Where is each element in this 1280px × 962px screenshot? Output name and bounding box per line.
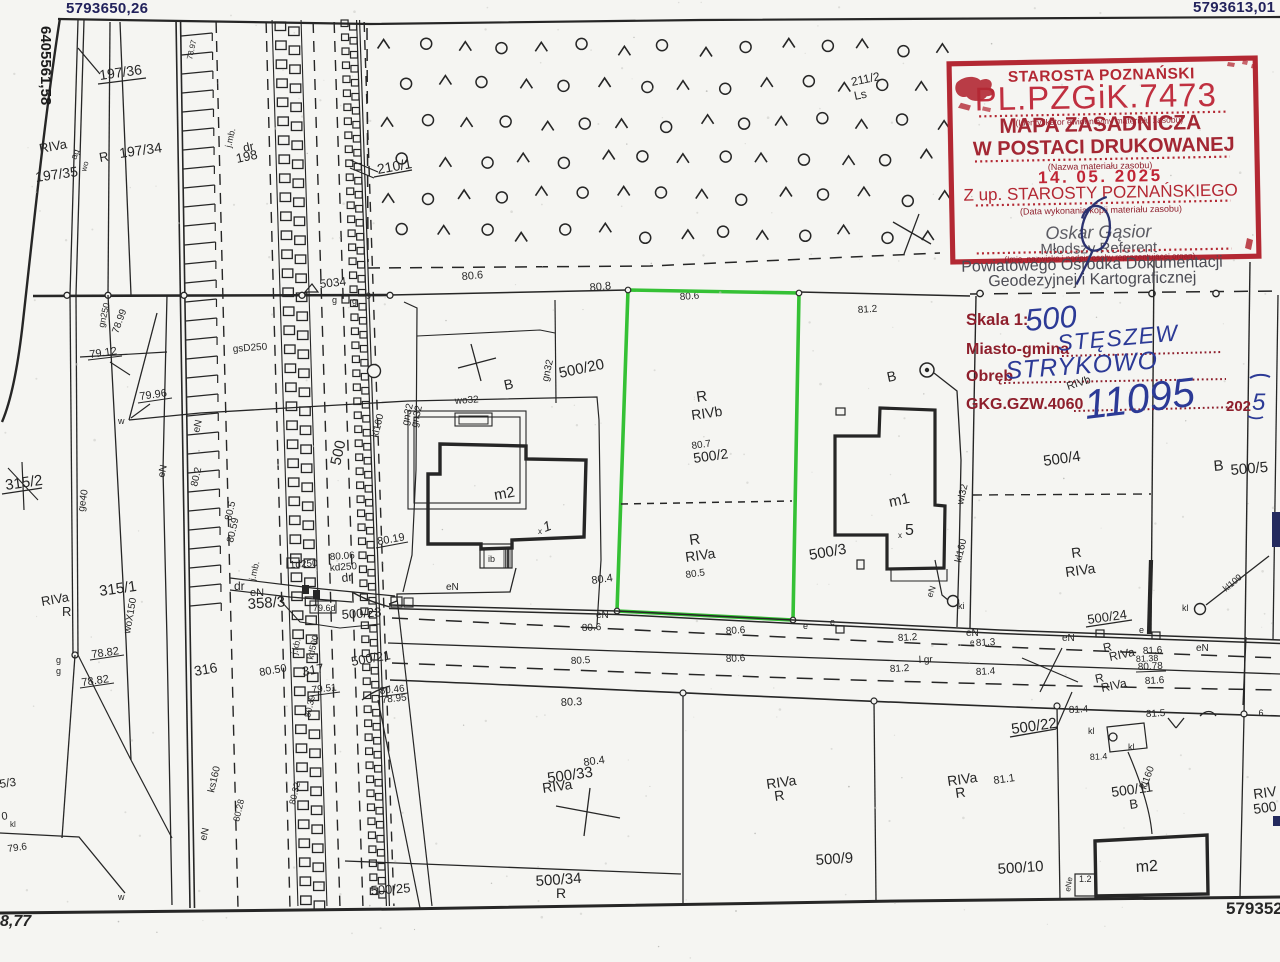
svg-text:.6: .6 bbox=[1256, 708, 1264, 718]
svg-text:81.5: 81.5 bbox=[1146, 708, 1166, 720]
svg-text:5: 5 bbox=[905, 522, 914, 539]
svg-text:eN: eN bbox=[1196, 643, 1209, 654]
svg-text:R: R bbox=[556, 885, 566, 901]
svg-text:5034: 5034 bbox=[319, 274, 347, 291]
svg-text:R: R bbox=[62, 604, 71, 619]
svg-text:80.5: 80.5 bbox=[571, 655, 591, 667]
svg-text:80.6: 80.6 bbox=[726, 653, 746, 665]
svg-text:ib: ib bbox=[488, 554, 495, 564]
svg-text:5793613,01: 5793613,01 bbox=[1193, 0, 1275, 16]
svg-text:B: B bbox=[1213, 457, 1224, 475]
svg-text:81.2: 81.2 bbox=[898, 632, 918, 644]
svg-text:5: 5 bbox=[1252, 389, 1266, 416]
svg-text:500/9: 500/9 bbox=[815, 849, 854, 869]
svg-text:81.6: 81.6 bbox=[1145, 675, 1165, 687]
svg-text:Skala 1:: Skala 1: bbox=[966, 311, 1028, 329]
svg-text:GKG.GZW.4060: GKG.GZW.4060 bbox=[966, 396, 1083, 413]
svg-text:81.2: 81.2 bbox=[857, 304, 878, 316]
svg-text:e: e bbox=[970, 638, 975, 647]
svg-text:6405561,58: 6405561,58 bbox=[37, 26, 54, 105]
svg-text:dr: dr bbox=[234, 579, 245, 593]
svg-text:eN: eN bbox=[966, 628, 979, 639]
svg-text:80.3: 80.3 bbox=[561, 696, 583, 709]
svg-text:500/23: 500/23 bbox=[341, 604, 382, 622]
svg-text:5793650,26: 5793650,26 bbox=[66, 0, 148, 17]
svg-text:g: g bbox=[56, 666, 61, 676]
svg-text:81.4: 81.4 bbox=[976, 666, 996, 678]
svg-text:5/3: 5/3 bbox=[0, 775, 17, 791]
svg-text:9: 9 bbox=[366, 291, 371, 301]
svg-text:g: g bbox=[332, 295, 337, 305]
svg-text:dr: dr bbox=[341, 570, 353, 585]
svg-text:358/3: 358/3 bbox=[247, 593, 286, 613]
svg-text:500/25: 500/25 bbox=[370, 880, 411, 898]
svg-text:80.8: 80.8 bbox=[589, 280, 611, 294]
svg-text:579352: 579352 bbox=[1226, 899, 1280, 918]
svg-text:80.6: 80.6 bbox=[461, 269, 483, 283]
svg-text:e: e bbox=[830, 617, 835, 627]
svg-text:8,77: 8,77 bbox=[0, 913, 32, 930]
svg-text:g: g bbox=[56, 655, 61, 665]
svg-text:m2: m2 bbox=[1135, 858, 1158, 876]
svg-text:80.6: 80.6 bbox=[582, 622, 602, 634]
svg-text:eN: eN bbox=[596, 610, 609, 621]
svg-text:81.2: 81.2 bbox=[890, 663, 910, 675]
svg-text:eN: eN bbox=[446, 582, 459, 593]
svg-text:kl: kl bbox=[1128, 742, 1135, 752]
svg-text:e: e bbox=[1139, 625, 1144, 635]
svg-text:m2: m2 bbox=[493, 484, 516, 504]
svg-text:500/10: 500/10 bbox=[997, 858, 1044, 878]
svg-text:wo32: wo32 bbox=[453, 394, 479, 407]
svg-text:kl: kl bbox=[10, 820, 16, 829]
svg-text:kl: kl bbox=[1088, 726, 1095, 736]
svg-text:80.6: 80.6 bbox=[726, 625, 746, 637]
svg-text:1d250: 1d250 bbox=[289, 558, 318, 571]
svg-text:w: w bbox=[117, 416, 125, 426]
svg-text:eN: eN bbox=[1062, 633, 1075, 644]
svg-text:l gr: l gr bbox=[919, 654, 934, 666]
svg-text:x: x bbox=[898, 531, 902, 540]
svg-text:500/5: 500/5 bbox=[1230, 459, 1269, 479]
svg-text:79.6d: 79.6d bbox=[313, 603, 336, 613]
svg-text:500: 500 bbox=[1252, 798, 1278, 817]
svg-text:kl: kl bbox=[1182, 603, 1189, 613]
svg-text:202: 202 bbox=[1226, 398, 1251, 415]
svg-text:81.4: 81.4 bbox=[1090, 751, 1108, 762]
svg-text:e: e bbox=[803, 621, 808, 631]
svg-text:ki: ki bbox=[958, 601, 965, 611]
svg-text:1.2: 1.2 bbox=[1079, 874, 1092, 884]
svg-text:g: g bbox=[352, 296, 357, 306]
svg-text:x: x bbox=[538, 527, 542, 536]
svg-text:w: w bbox=[117, 892, 125, 902]
svg-text:81.4: 81.4 bbox=[1069, 704, 1089, 716]
